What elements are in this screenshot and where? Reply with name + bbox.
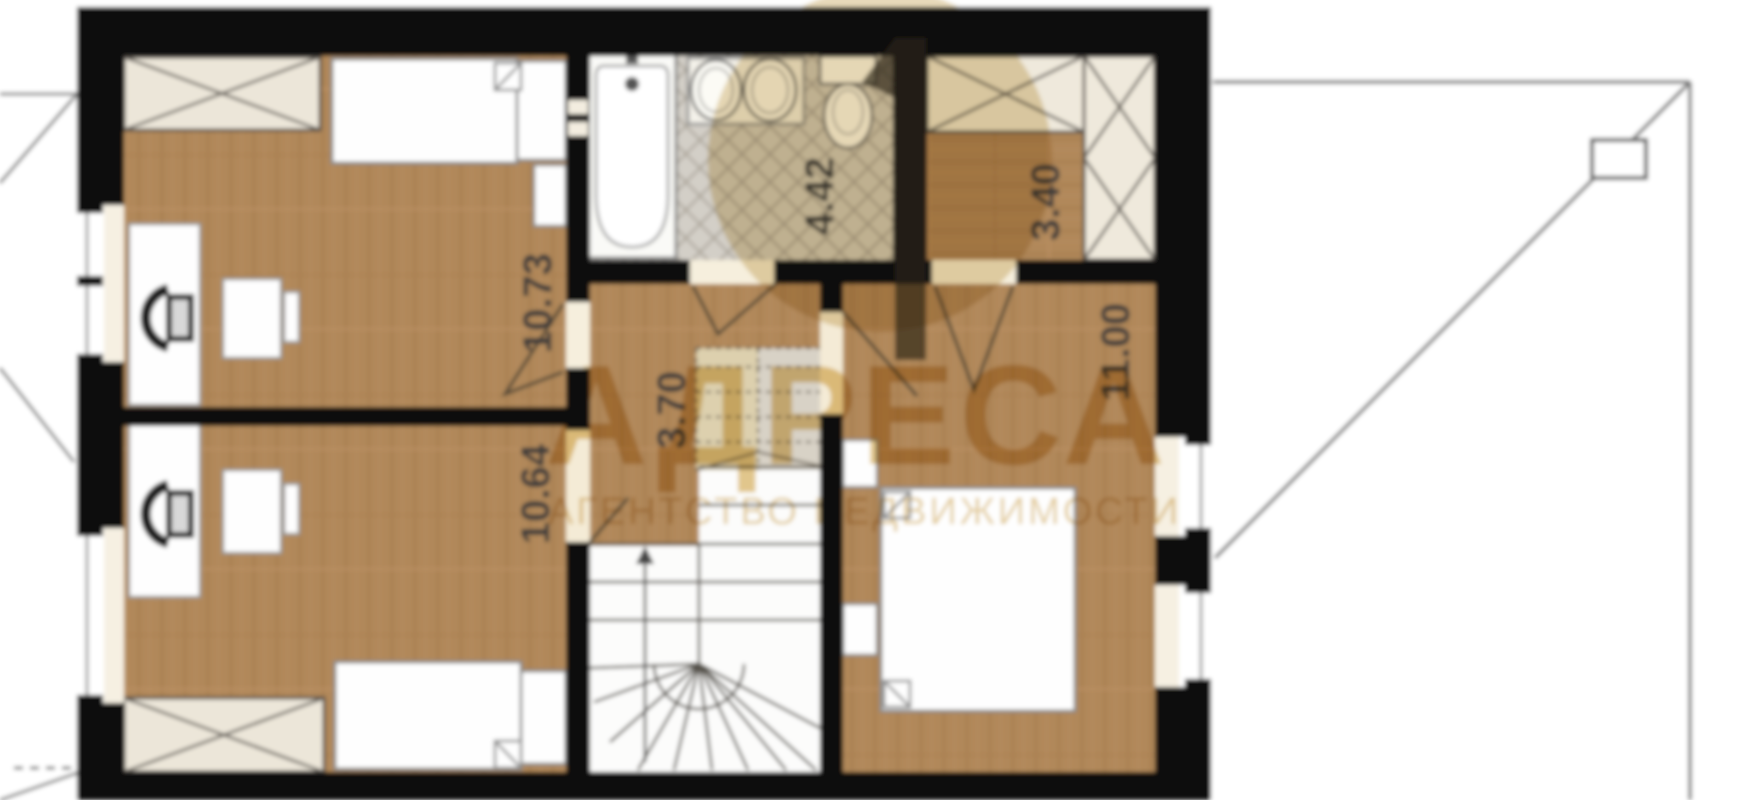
svg-text:АДРЕСА: АДРЕСА [545, 336, 1169, 495]
svg-text:АГЕНТСТВО НЕДВИЖИМОСТИ: АГЕНТСТВО НЕДВИЖИМОСТИ [548, 491, 1181, 533]
